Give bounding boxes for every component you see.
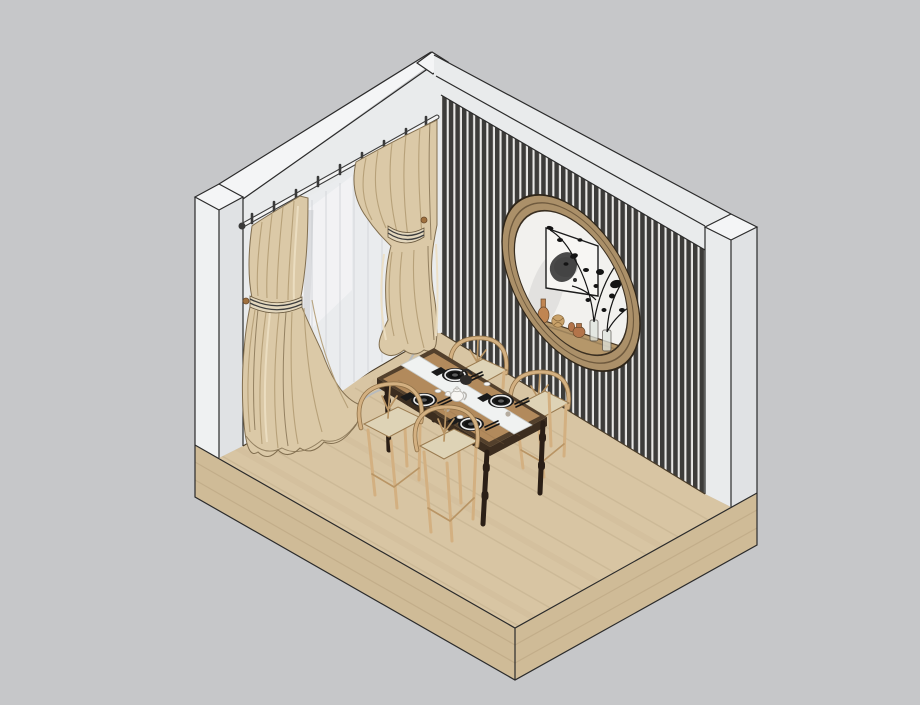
left-pillar-front: [195, 197, 219, 458]
left-tieback-hook: [243, 298, 249, 304]
right-tieback-hook: [421, 217, 427, 223]
decor-ball: [505, 411, 510, 416]
render-canvas: Isometric 3D render of a dining room cor…: [0, 0, 920, 705]
right-pillar-side: [731, 227, 757, 507]
isometric-room-render: Isometric 3D render of a dining room cor…: [0, 0, 920, 705]
teapot: [451, 391, 464, 402]
tea-cup: [484, 382, 490, 386]
tea-cup: [457, 415, 463, 419]
glass-vase: [603, 330, 612, 351]
iron-kettle: [460, 375, 472, 385]
rod-finial: [239, 223, 246, 230]
round-pot: [573, 327, 585, 338]
glass-vase: [590, 320, 598, 341]
tea-cup: [435, 389, 441, 393]
jug-neck: [541, 299, 546, 308]
left-pillar-side: [219, 197, 243, 458]
